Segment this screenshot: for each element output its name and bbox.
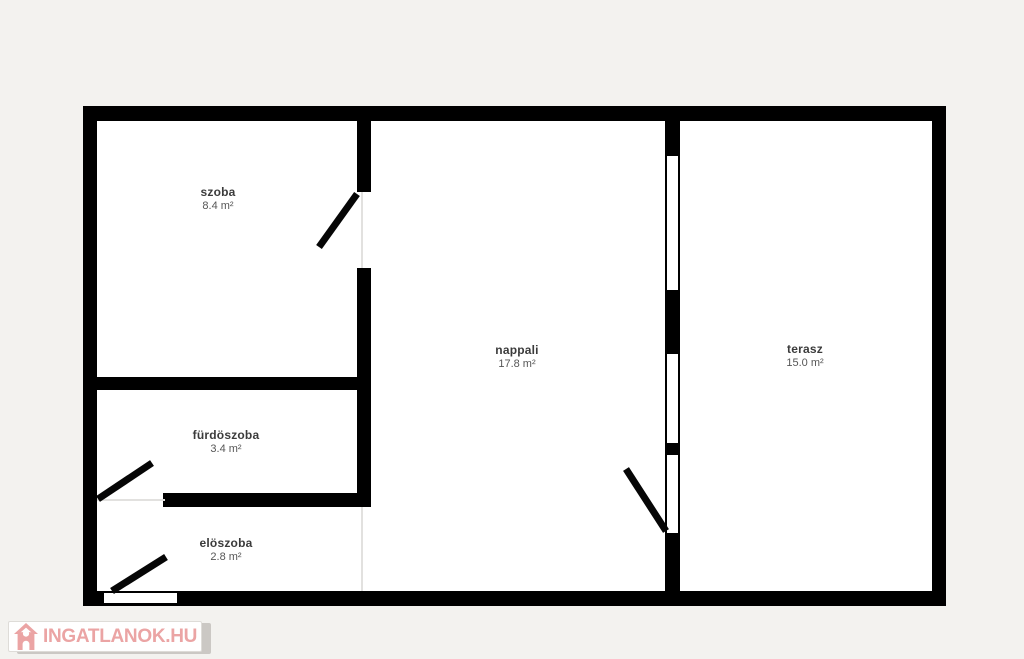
room-name: szoba: [200, 185, 235, 199]
room-name: fürdöszoba: [193, 428, 260, 442]
room-label-nappali: nappali 17.8 m²: [495, 343, 538, 370]
door-swing-szoba: [319, 194, 357, 247]
room-name: elöszoba: [200, 536, 253, 550]
room-label-eloszoba: elöszoba 2.8 m²: [200, 536, 253, 563]
door-swing-entrance: [112, 557, 166, 591]
room-area: 17.8 m²: [495, 358, 538, 370]
house-icon: [14, 623, 38, 650]
room-label-szoba: szoba 8.4 m²: [200, 185, 235, 212]
door-swing-overlay: [0, 0, 1024, 659]
room-area: 8.4 m²: [200, 200, 235, 212]
room-area: 3.4 m²: [193, 443, 260, 455]
door-swing-furdoszoba: [98, 463, 152, 499]
floor-plan-page: szoba 8.4 m² fürdöszoba 3.4 m² elöszoba …: [0, 0, 1024, 659]
room-name: nappali: [495, 343, 538, 357]
room-label-terasz: terasz 15.0 m²: [786, 342, 823, 369]
room-label-furdoszoba: fürdöszoba 3.4 m²: [193, 428, 260, 455]
watermark-ingatlanok: INGATLANOK.HU: [8, 621, 202, 652]
room-area: 2.8 m²: [200, 551, 253, 563]
door-swing-nappali-terasz: [626, 469, 666, 531]
room-area: 15.0 m²: [786, 357, 823, 369]
room-name: terasz: [786, 342, 823, 356]
watermark-text: INGATLANOK.HU: [43, 627, 197, 646]
